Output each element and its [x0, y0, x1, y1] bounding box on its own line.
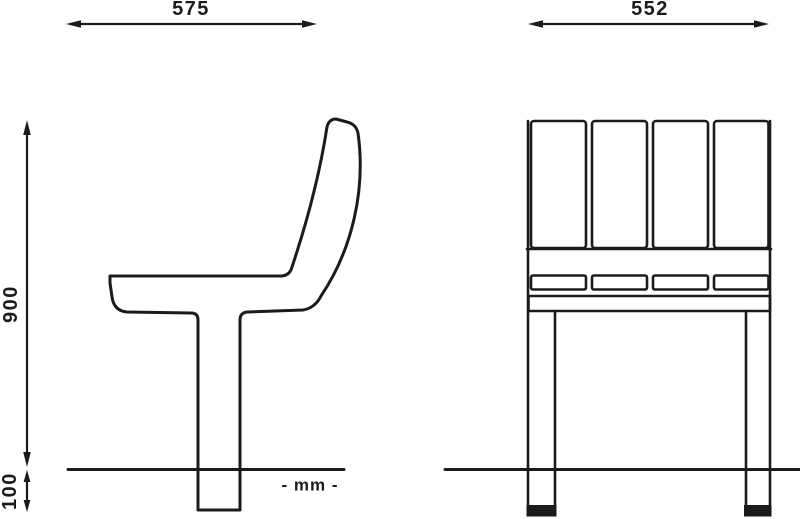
lower-slat-1	[531, 276, 586, 290]
chair-drawing-svg	[0, 0, 800, 519]
dimension-line-overall-height	[23, 120, 31, 467]
technical-drawing-canvas: 575 552 900 100 - mm -	[0, 0, 800, 519]
front-left-foot-cap	[527, 505, 557, 517]
lower-slat-3	[653, 276, 708, 290]
dimension-line-front-width	[528, 20, 769, 28]
backrest-slat-1	[531, 121, 586, 248]
dimension-label-side-depth: 575	[172, 0, 210, 19]
front-seat-slab	[529, 296, 771, 311]
backrest-slat-2	[592, 121, 647, 248]
dimension-line-side-depth	[66, 20, 317, 28]
backrest-slat-3	[653, 121, 708, 248]
dimension-lines	[23, 20, 769, 512]
front-right-foot-cap	[744, 505, 772, 517]
backrest-slat-4	[714, 121, 769, 248]
chair-front-view	[445, 121, 800, 517]
lower-slat-2	[592, 276, 647, 290]
dimension-label-overall-height: 900	[1, 285, 21, 323]
dimension-line-base-height	[24, 470, 31, 512]
lower-slat-4	[714, 276, 769, 290]
dimension-label-front-width: 552	[631, 0, 669, 19]
dimension-label-base-height: 100	[0, 472, 20, 510]
units-note-label: - mm -	[282, 477, 339, 494]
side-view-outline	[110, 119, 360, 510]
chair-side-view	[68, 119, 360, 510]
